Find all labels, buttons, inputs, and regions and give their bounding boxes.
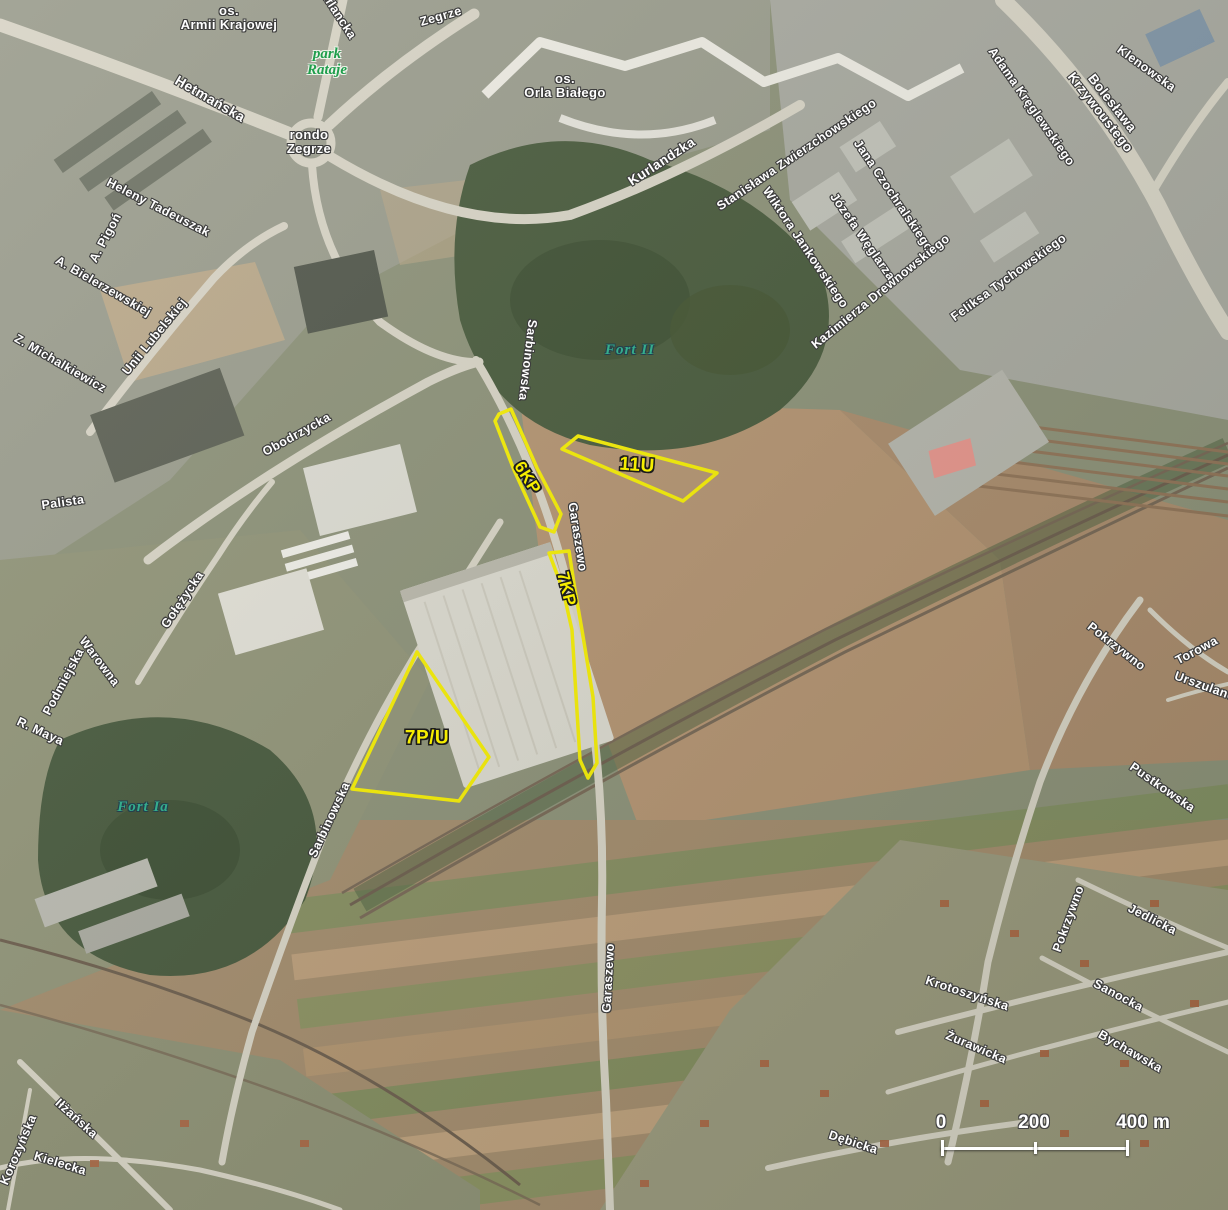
scale-label-0: 0 [936,1112,947,1134]
park-label: park Rataje [307,46,347,78]
scale-bar: 0 200 400 m [920,1108,1220,1178]
street-label: Sarbinowska [515,319,538,402]
street-label: Pokrzywno [1051,884,1087,954]
street-label: Torowa [1174,634,1221,667]
street-label: Heleny Tadeuszak [104,176,212,240]
street-label: A. Bielerzewskiej [53,254,153,320]
street-label: Garaszewo [600,943,617,1013]
street-label: Iłżańska [52,1097,100,1142]
fort-label: Fort Ia [117,799,169,815]
zone-label-7pu: 7P/U [405,729,449,750]
street-label: Garaszewo [565,502,589,573]
street-label: Warowna [76,635,122,689]
street-label: Kielecka [32,1150,88,1179]
street-label: Palista [41,493,86,512]
street-label: Dębicka [827,1129,879,1158]
map-canvas: os. Armii KrajowejInflanckaZegrzeHetmańs… [0,0,1228,1210]
street-label: Wiktora Jankowskiego [760,185,851,311]
street-label: Sarbinowska [307,780,354,860]
street-label: Korozyńska [0,1113,40,1187]
street-label: Feliksa Tychowskiego [949,232,1069,325]
street-label: Stanisława Zwierzchowskiego [715,96,880,213]
fort-label: Fort II [605,342,655,358]
street-label: Żurawicka [944,1029,1009,1067]
scale-tick-start [941,1140,944,1156]
street-label: Z. Michalkiewicz [12,332,109,396]
street-label: Jedlicka [1126,902,1179,938]
street-label: Sanocka [1091,977,1145,1014]
street-label: Bychawska [1096,1028,1165,1076]
street-label: Kazimierza Drewnowskiego [809,232,952,352]
zone-label-11u: 11U [619,455,656,478]
street-label: rondo Zegrze [287,128,331,156]
street-label: Zegrze [419,5,464,30]
street-label: os. Armii Krajowej [181,4,278,32]
street-label: Podmiejska [41,646,87,717]
street-label: Pustkowska [1127,761,1197,816]
street-label: Pokrzywno [1084,620,1147,673]
zone-label-6kp: 6KP [510,458,544,497]
street-label: A. Pigoń [87,211,124,265]
scale-tick-end [1126,1140,1129,1156]
street-label: Klenowska [1114,43,1178,94]
street-label: Unii Lubelskiej [120,296,190,378]
street-label: Bolesława Krzywoustego [1057,51,1155,165]
scale-tick-mid [1034,1142,1037,1154]
street-label: Adama Kręglewskiego [985,45,1077,168]
street-label: Krotoszyńska [924,974,1011,1014]
street-label: Hetmańska [172,73,247,125]
street-label: Józefa Węglarza [827,191,897,283]
scale-label-200: 200 [1018,1112,1050,1134]
scale-label-400: 400 m [1116,1112,1170,1134]
street-label: Obodrzycka [261,411,334,459]
street-label: Urszulanek [1172,670,1228,707]
street-label: Kurlandzka [626,135,698,189]
street-label: Inflancka [316,0,359,42]
street-label: Gołężycka [159,569,207,631]
zone-label-7kp: 7KP [553,570,579,608]
labels-layer: os. Armii KrajowejInflanckaZegrzeHetmańs… [0,0,1228,1210]
street-label: os. Orla Białego [524,72,605,100]
street-label: R. Maya [14,715,65,748]
street-label: Jana Czochralskiego [851,138,936,255]
